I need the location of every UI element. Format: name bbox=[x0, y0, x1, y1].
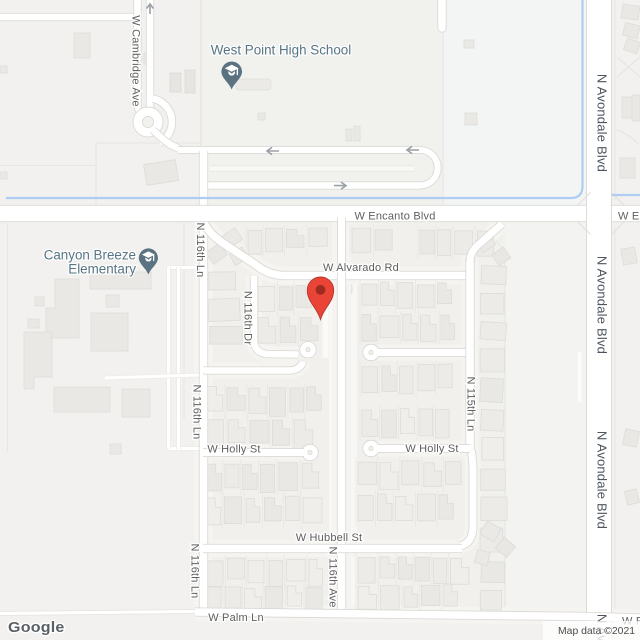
svg-text:Elementary: Elementary bbox=[68, 262, 136, 277]
svg-text:W Encanto Blvd: W Encanto Blvd bbox=[618, 211, 640, 223]
svg-text:W Hubbell St: W Hubbell St bbox=[296, 532, 363, 544]
svg-text:W Holly St: W Holly St bbox=[405, 443, 458, 455]
svg-text:N 116th Ave: N 116th Ave bbox=[327, 546, 339, 607]
svg-text:N 116th Dr: N 116th Dr bbox=[242, 291, 254, 346]
svg-text:N 116th Ln: N 116th Ln bbox=[194, 222, 206, 277]
svg-text:West Point High School: West Point High School bbox=[211, 43, 351, 58]
svg-text:W Cambridge Ave: W Cambridge Ave bbox=[130, 15, 142, 106]
svg-text:N Avondale Blvd: N Avondale Blvd bbox=[595, 74, 610, 172]
svg-text:Canyon Breeze: Canyon Breeze bbox=[44, 248, 136, 263]
svg-text:W Palm Ln: W Palm Ln bbox=[208, 612, 264, 624]
svg-text:W Holly St: W Holly St bbox=[207, 444, 260, 456]
svg-text:N Avondale Blvd: N Avondale Blvd bbox=[595, 256, 610, 354]
svg-text:N 116th Ln: N 116th Ln bbox=[189, 543, 201, 598]
svg-text:W Encanto Blvd: W Encanto Blvd bbox=[354, 211, 435, 223]
svg-text:Map data ©2021: Map data ©2021 bbox=[558, 626, 635, 637]
svg-text:N 116th Ln: N 116th Ln bbox=[191, 384, 203, 439]
svg-text:N 115th Ln: N 115th Ln bbox=[465, 376, 477, 431]
svg-text:Google: Google bbox=[8, 620, 65, 636]
svg-text:N Avondale Blvd: N Avondale Blvd bbox=[595, 431, 610, 529]
svg-text:W Alvarado Rd: W Alvarado Rd bbox=[323, 262, 399, 274]
